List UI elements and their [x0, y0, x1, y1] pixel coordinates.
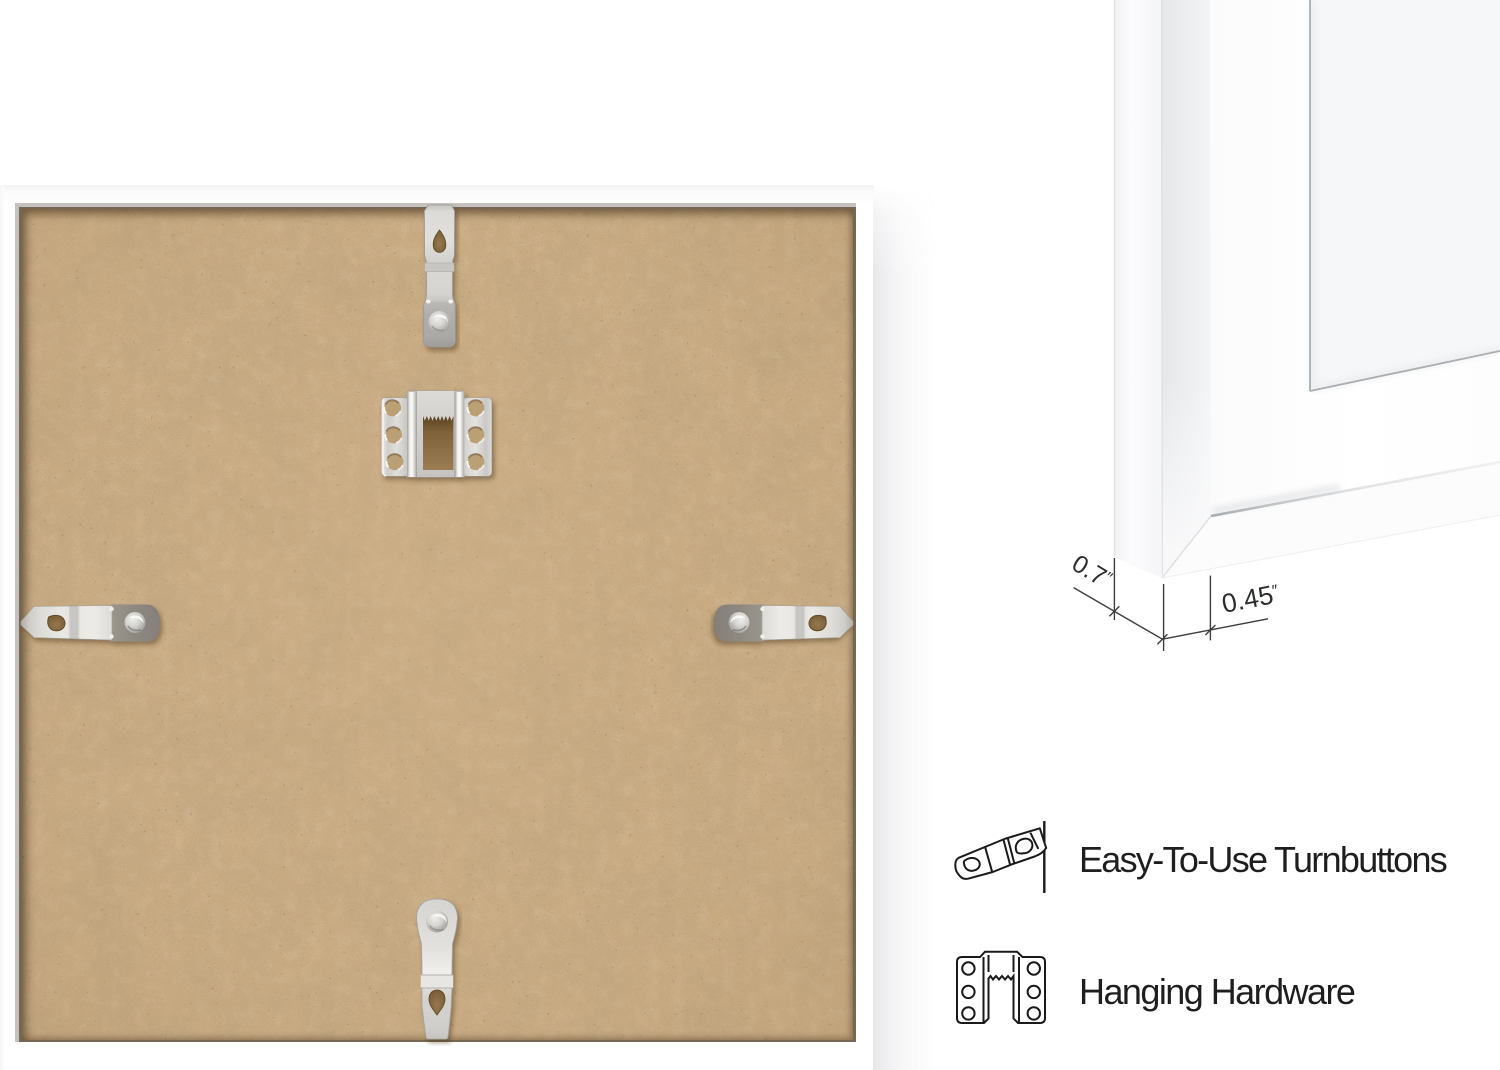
svg-text:0.45″: 0.45″: [1219, 578, 1281, 618]
